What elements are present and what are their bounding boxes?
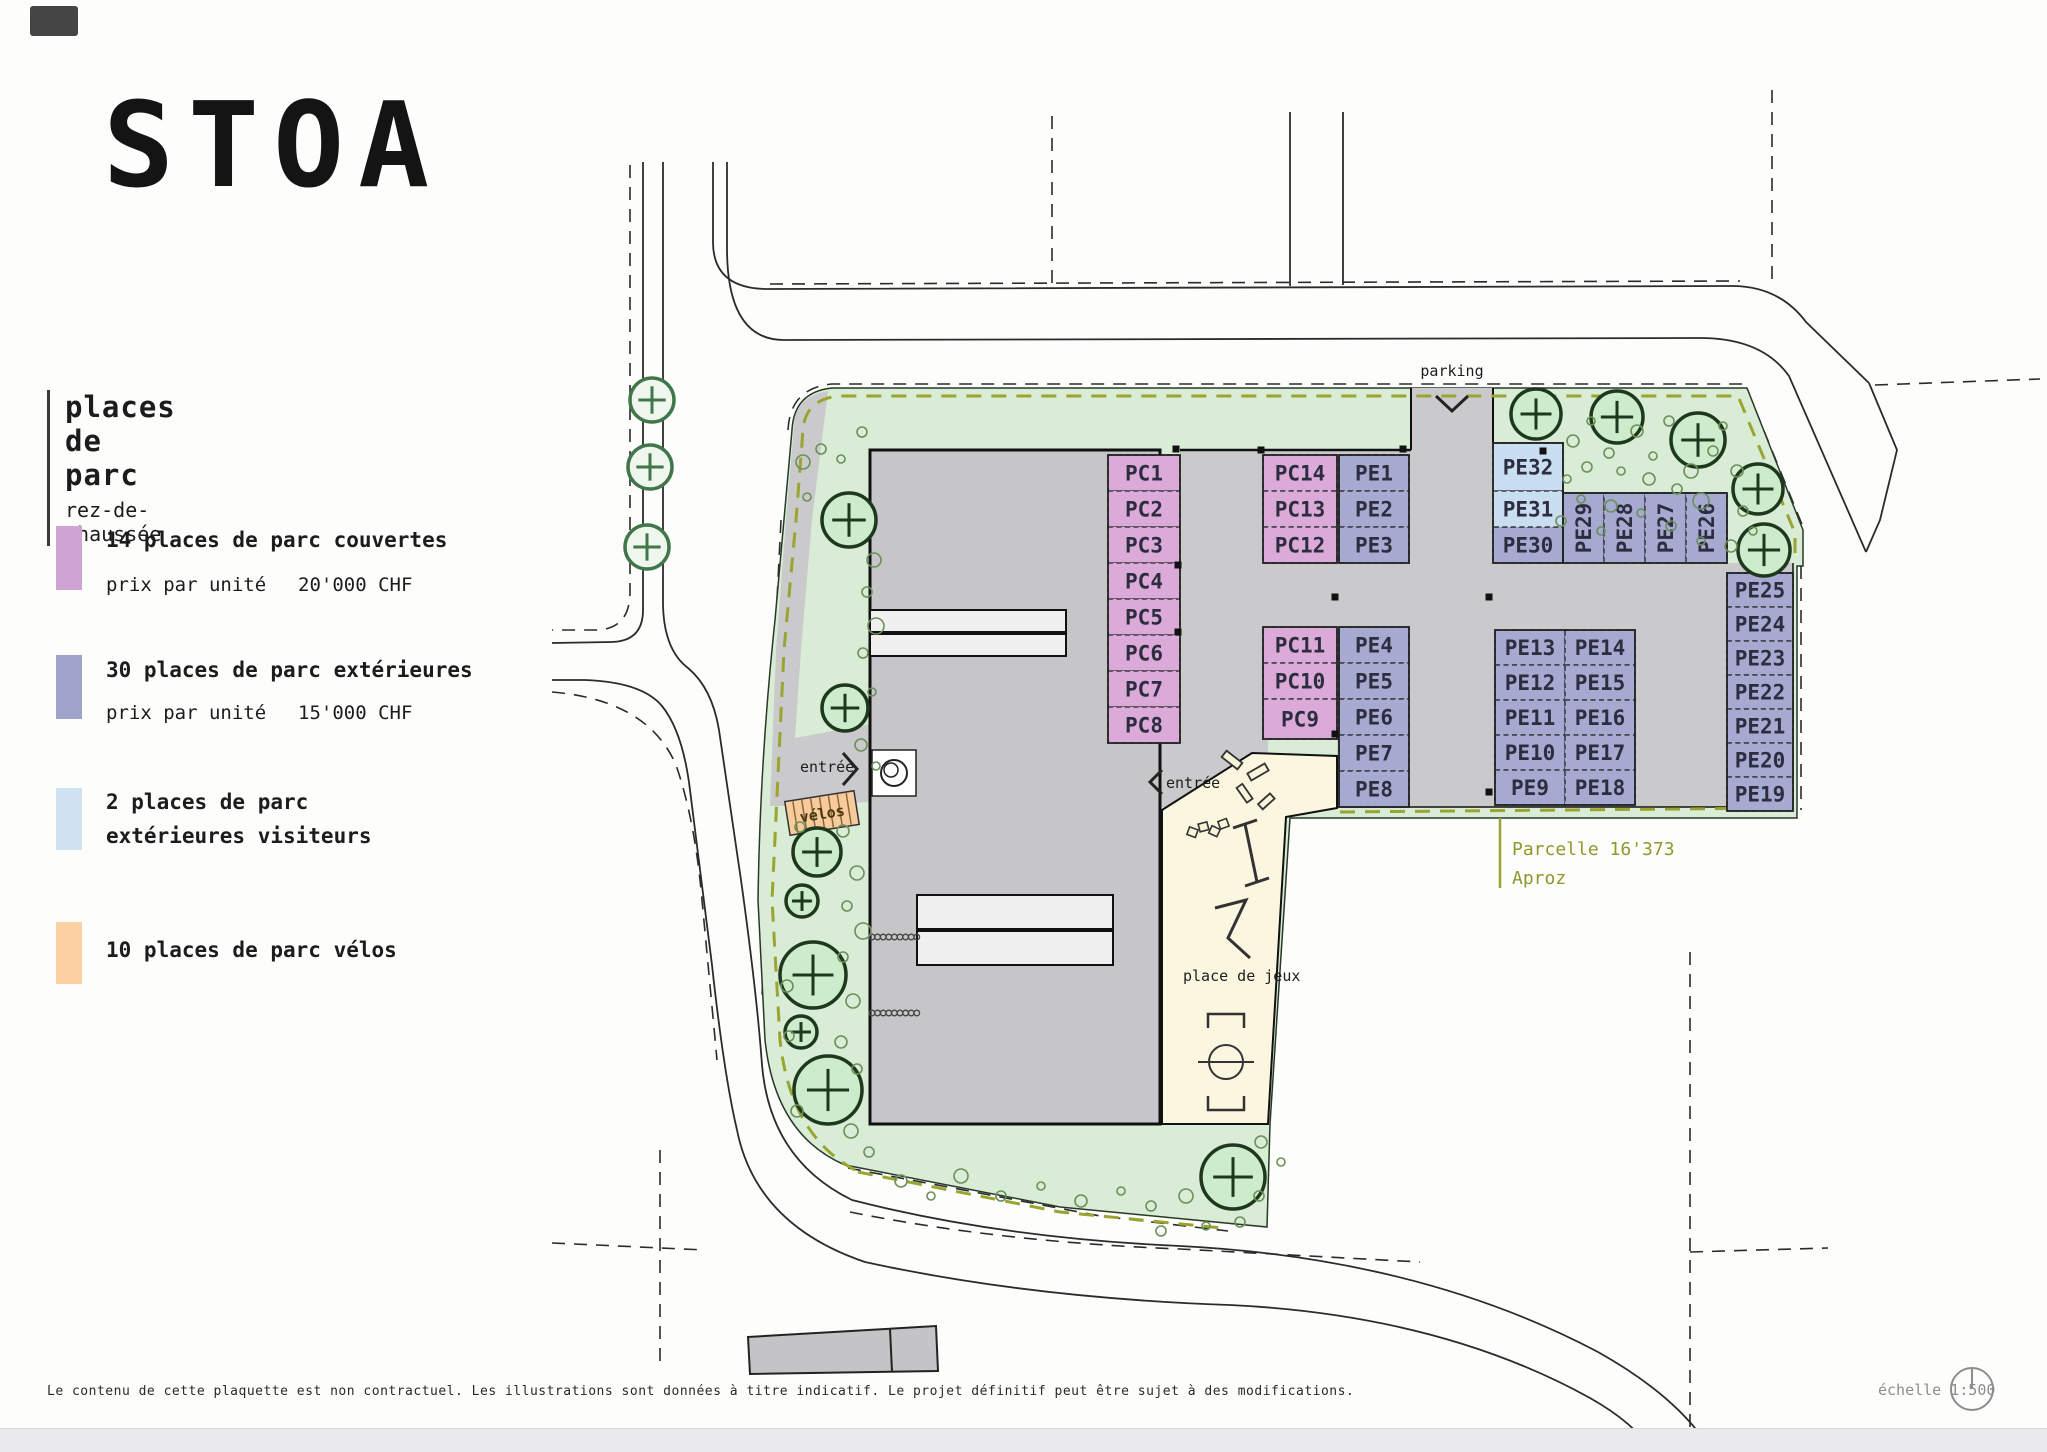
parking-space-label: PE26 — [1695, 503, 1719, 554]
road-line — [1866, 383, 1897, 552]
parking-space-exterior: PE20 — [1727, 743, 1793, 777]
parking-space-covered: PC7 — [1108, 671, 1180, 707]
parking-space-exterior: PE19 — [1727, 777, 1793, 811]
parking-entrance-label: parking — [1420, 362, 1483, 380]
parking-space-exterior: PE5 — [1339, 663, 1409, 699]
parking-space-covered: PC8 — [1108, 707, 1180, 743]
ramp-segment — [917, 931, 1113, 965]
parking-space-label: PE10 — [1505, 741, 1556, 765]
parking-space-exterior: PE7 — [1339, 735, 1409, 771]
footer-strip — [0, 1428, 2047, 1452]
parking-space-exterior: PE16 — [1565, 700, 1635, 735]
entree-left-label: entrée — [800, 758, 854, 776]
shrub-icon — [1277, 1158, 1285, 1166]
parking-space-label: PE22 — [1735, 681, 1786, 705]
parking-space-label: PE16 — [1575, 706, 1626, 730]
parking-space-exterior: PE14 — [1565, 630, 1635, 665]
parking-space-exterior: PE23 — [1727, 641, 1793, 675]
parking-space-exterior: PE13 — [1495, 630, 1565, 665]
dashed-line — [552, 692, 717, 1060]
parking-space-label: PE20 — [1735, 749, 1786, 773]
dashed-line — [1690, 1248, 1828, 1252]
survey-marker — [1332, 594, 1339, 601]
tree-icon — [822, 685, 868, 731]
parking-space-covered: PC2 — [1108, 491, 1180, 527]
survey-marker — [1175, 562, 1182, 569]
parking-space-label: PE11 — [1505, 706, 1556, 730]
parking-space-label: PC1 — [1125, 462, 1163, 486]
parking-space-covered: PC14 — [1263, 455, 1337, 491]
tree-icon — [1738, 524, 1790, 576]
tree-icon — [786, 885, 818, 917]
parking-space-exterior: PE4 — [1339, 627, 1409, 663]
parking-space-exterior: PE9 — [1495, 770, 1565, 805]
tree-icon — [1671, 413, 1725, 467]
survey-marker — [1400, 446, 1407, 453]
parcel-number-label: Parcelle 16'373 — [1512, 839, 1675, 860]
parking-space-label: PC8 — [1125, 714, 1163, 738]
footer-disclaimer: Le contenu de cette plaquette est non co… — [47, 1384, 1354, 1399]
parking-space-exterior: PE26 — [1686, 493, 1727, 563]
parking-space-label: PC3 — [1125, 534, 1163, 558]
road-line — [713, 162, 1869, 383]
parking-space-label: PE23 — [1735, 647, 1786, 671]
parking-space-label: PE18 — [1575, 776, 1626, 800]
parking-space-label: PE6 — [1355, 706, 1393, 730]
parking-space-exterior: PE28 — [1604, 493, 1645, 563]
parking-space-exterior: PE30 — [1493, 527, 1563, 563]
parking-space-exterior: PE1 — [1339, 455, 1409, 491]
parking-space-label: PE31 — [1503, 498, 1554, 522]
parking-space-label: PE1 — [1355, 462, 1393, 486]
survey-marker — [1175, 629, 1182, 636]
parking-space-covered: PC4 — [1108, 563, 1180, 599]
playground-area — [1162, 753, 1337, 1124]
parking-space-label: PE15 — [1575, 671, 1626, 695]
parking-space-exterior: PE15 — [1565, 665, 1635, 700]
parking-space-label: PE19 — [1735, 783, 1786, 807]
tree-icon — [1591, 391, 1643, 443]
parking-space-visitor: PE32 — [1493, 443, 1563, 491]
parking-space-label: PE3 — [1355, 534, 1393, 558]
survey-marker — [1486, 594, 1493, 601]
parking-space-exterior: PE3 — [1339, 527, 1409, 563]
shrub-icon — [927, 1192, 935, 1200]
parking-space-label: PE9 — [1511, 776, 1549, 800]
parking-space-covered: PC13 — [1263, 491, 1337, 527]
utility-box-frame — [872, 750, 916, 796]
tree-icon — [1511, 389, 1561, 439]
parking-space-label: PE7 — [1355, 742, 1393, 766]
tree-icon — [822, 493, 876, 547]
parking-space-label: PC6 — [1125, 642, 1163, 666]
ramp-segment — [870, 634, 1066, 656]
parking-space-label: PE29 — [1572, 503, 1596, 554]
ramp-segment — [917, 895, 1113, 929]
parcel-place-label: Aproz — [1512, 868, 1566, 889]
parking-space-exterior: PE8 — [1339, 771, 1409, 807]
dashed-line — [552, 165, 630, 630]
parking-space-covered: PC5 — [1108, 599, 1180, 635]
tree-icon — [630, 378, 674, 422]
dashed-line — [552, 1243, 705, 1250]
shrub-icon — [1156, 1226, 1166, 1236]
parking-space-covered: PC6 — [1108, 635, 1180, 671]
parking-space-exterior: PE22 — [1727, 675, 1793, 709]
dashed-line — [770, 281, 1740, 284]
parking-space-exterior: PE18 — [1565, 770, 1635, 805]
survey-marker — [1258, 447, 1265, 454]
parking-space-visitor: PE31 — [1493, 491, 1563, 527]
parking-space-label: PE14 — [1575, 636, 1626, 660]
parking-space-label: PC11 — [1275, 634, 1326, 658]
tree-icon — [793, 828, 841, 876]
tree-icon — [628, 445, 672, 489]
parking-space-covered: PC12 — [1263, 527, 1337, 563]
parking-space-covered: PC11 — [1263, 627, 1337, 663]
neighbour-building — [748, 1326, 938, 1374]
parking-space-label: PE5 — [1355, 670, 1393, 694]
parking-space-label: PE28 — [1613, 503, 1637, 554]
parking-space-exterior: PE21 — [1727, 709, 1793, 743]
utility-box — [872, 750, 916, 796]
tree-icon — [785, 1016, 817, 1048]
survey-marker — [1540, 448, 1547, 455]
entree-mid-label: entrée — [1166, 774, 1220, 792]
parking-space-exterior: PE2 — [1339, 491, 1409, 527]
parking-space-label: PC9 — [1281, 708, 1319, 732]
tree-icon — [794, 1056, 862, 1124]
parking-space-covered: PC1 — [1108, 455, 1180, 491]
parking-space-label: PC12 — [1275, 534, 1326, 558]
parking-space-covered: PC9 — [1263, 699, 1337, 739]
scale-label: échelle 1:500 — [1878, 1381, 1995, 1399]
parking-space-label: PE13 — [1505, 636, 1556, 660]
parking-space-label: PE12 — [1505, 671, 1556, 695]
parking-space-exterior: PE17 — [1565, 735, 1635, 770]
ramp-segment — [870, 610, 1066, 632]
parking-space-label: PE30 — [1503, 534, 1554, 558]
parking-space-exterior: PE25 — [1727, 573, 1793, 607]
parking-space-label: PE21 — [1735, 715, 1786, 739]
parking-space-label: PE32 — [1503, 456, 1554, 480]
parking-space-label: PC7 — [1125, 678, 1163, 702]
parking-space-label: PC14 — [1275, 462, 1326, 486]
survey-marker — [1332, 731, 1339, 738]
survey-marker — [1486, 789, 1493, 796]
parking-space-covered: PC10 — [1263, 663, 1337, 699]
parking-space-exterior: PE11 — [1495, 700, 1565, 735]
playground-label: place de jeux — [1183, 967, 1300, 985]
parking-space-exterior: PE10 — [1495, 735, 1565, 770]
site-plan: vélos — [0, 0, 2047, 1452]
parking-space-label: PC5 — [1125, 606, 1163, 630]
parking-space-exterior: PE24 — [1727, 607, 1793, 641]
parking-space-exterior: PE12 — [1495, 665, 1565, 700]
parking-space-label: PE4 — [1355, 634, 1393, 658]
dashed-line — [1875, 379, 2040, 385]
plan-page: STOA places de parc rez-de-chaussée 14 p… — [0, 0, 2047, 1452]
parking-space-label: PC4 — [1125, 570, 1163, 594]
parking-space-exterior: PE27 — [1645, 493, 1686, 563]
tree-icon — [625, 525, 669, 569]
parking-space-exterior: PE6 — [1339, 699, 1409, 735]
parking-space-label: PC10 — [1275, 670, 1326, 694]
parking-space-label: PC2 — [1125, 498, 1163, 522]
parking-space-label: PE24 — [1735, 613, 1786, 637]
parking-space-covered: PC3 — [1108, 527, 1180, 563]
parking-space-label: PE25 — [1735, 579, 1786, 603]
parking-space-label: PE8 — [1355, 778, 1393, 802]
parking-space-label: PC13 — [1275, 498, 1326, 522]
parking-space-label: PE17 — [1575, 741, 1626, 765]
tree-icon — [780, 942, 846, 1008]
parking-space-label: PE2 — [1355, 498, 1393, 522]
survey-marker — [1173, 446, 1180, 453]
